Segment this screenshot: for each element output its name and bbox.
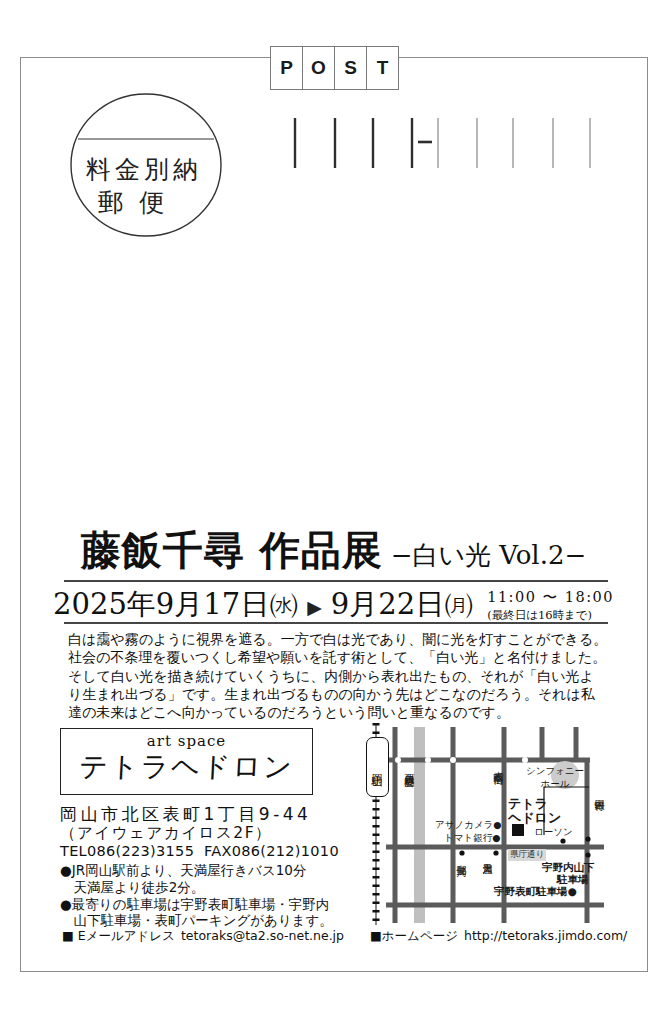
artist-statement: 白は靄や霧のように視界を遮る。一方で白は光であり、闇に光を灯すことができる。 社… (68, 630, 607, 721)
post-boxes: P O S T (270, 46, 399, 90)
footer-spacer (350, 928, 364, 945)
venue-tel-fax: TEL086(223)3155 FAX086(212)1010 (60, 843, 339, 859)
email-address: tetoraks@ta2.so-net.ne.jp (181, 928, 344, 945)
map-label-post-office: 郵便局 (454, 857, 468, 860)
map-label-chugoku-bank: 中国銀行 (592, 791, 606, 795)
divider-top (64, 580, 608, 582)
post-letter: P (280, 57, 293, 79)
map-label-tenmaya: 天満屋 (480, 855, 494, 858)
post-letter-cell: S (335, 46, 367, 90)
map-station-label: 岡山駅 (371, 766, 385, 769)
map-label-asano-camera: アサノカメラ● (435, 819, 502, 832)
postcard-page: P O S T 料金別納 郵便 藤飯千尋 作品展 −白い光 Vol.2− 202… (0, 0, 667, 1024)
map-venue-marker (512, 824, 524, 836)
statement-line: 白は靄や霧のように視界を遮る。一方で白は光であり、闇に光を灯すことができる。 (68, 630, 607, 648)
post-letter-cell: P (270, 46, 303, 90)
title-main: 藤飯千尋 作品展 (81, 523, 383, 578)
access-map: 岡山駅 西川緑道公園 表町商店街 シンフォニー ホール テトラ ヘドロン ローソ… (358, 723, 625, 925)
schedule-row: 2025年9月17日㈬ ▶ 9月22日㈪ 11:00 〜 18:00 (最終日は… (20, 585, 647, 625)
email-label: ■ Eメールアドレス (62, 928, 175, 945)
stamp-text-line1: 料金別納 (86, 155, 202, 184)
statement-line: そして白い光を描き続けていくうちに、内側から表れ出たもの、それが「白い光よ (68, 667, 607, 685)
map-label-kencho-street: 県庁通り (508, 849, 546, 861)
divider-bottom (64, 622, 608, 624)
arrow-right-icon: ▶ (307, 596, 322, 618)
contact-footer: ■ Eメールアドレス tetoraks@ta2.so-net.ne.jp ■ホー… (62, 928, 633, 945)
opening-hours: 11:00 〜 18:00 (最終日は16時まで) (487, 588, 614, 623)
homepage-label: ■ホームページ (370, 928, 458, 945)
postage-paid-stamp: 料金別納 郵便 (66, 86, 226, 244)
opening-hours-note: (最終日は16時まで) (487, 608, 614, 623)
date-start: 2025年9月17日㈬ (53, 585, 298, 625)
map-label-symphony-1: シンフォニー (516, 765, 594, 778)
venue-logo-name: テトラヘドロン (60, 748, 313, 786)
map-label-lawson: ローソン (534, 826, 573, 839)
access-line: ●最寄りの駐車場は宇野表町駐車場・宇野内 (60, 896, 333, 913)
post-letter: O (311, 57, 326, 79)
stamp-text-line2: 郵便 (98, 188, 180, 217)
map-label-park: 西川緑道公園 (402, 765, 416, 771)
map-label-shopping-street: 表町商店街 (491, 763, 505, 768)
statement-line: 社会の不条理を覆いつくし希望や願いを託す術として、「白い光」と名付けました。 (68, 648, 607, 666)
opening-hours-time: 11:00 〜 18:00 (487, 588, 614, 607)
map-station-okayama: 岡山駅 (366, 737, 389, 797)
access-info: ●JR岡山駅前より、天満屋行きバス10分 天満屋より徒歩2分。 ●最寄りの駐車場… (60, 862, 333, 929)
postal-code-guides (280, 114, 610, 174)
post-letter: S (344, 57, 357, 79)
venue-logo-box: art space テトラヘドロン (60, 728, 313, 795)
title-sub: −白い光 Vol.2− (391, 538, 587, 573)
post-letter-cell: O (303, 46, 335, 90)
access-line: 山下駐車場・表町パーキングがあります。 (60, 912, 333, 929)
venue-address-line2: （アイウェアカイロス2F） (60, 823, 272, 844)
map-park-band (414, 727, 425, 923)
map-label-uno-omotecho: 宇野表町駐車場● (494, 885, 577, 899)
post-letter: T (377, 57, 389, 79)
post-letter-cell: T (367, 46, 399, 90)
access-line: 天満屋より徒歩2分。 (60, 879, 333, 896)
date-end: 9月22日㈪ (331, 585, 473, 625)
statement-line: り生まれ出づる」です。生まれ出づるものの向かう先はどこなのだろう。それは私 (68, 685, 607, 703)
map-label-symphony-2: ホール (516, 778, 594, 791)
statement-line: 達の未来はどこへ向かっているのだろうという問いと重なるのです。 (68, 703, 607, 721)
exhibition-title: 藤飯千尋 作品展 −白い光 Vol.2− (20, 523, 647, 578)
map-label-tomato-bank: トマト銀行● (444, 832, 500, 845)
homepage-url: http://tetoraks.jimdo.com/ (464, 928, 627, 945)
access-line: ●JR岡山駅前より、天満屋行きバス10分 (60, 862, 333, 879)
